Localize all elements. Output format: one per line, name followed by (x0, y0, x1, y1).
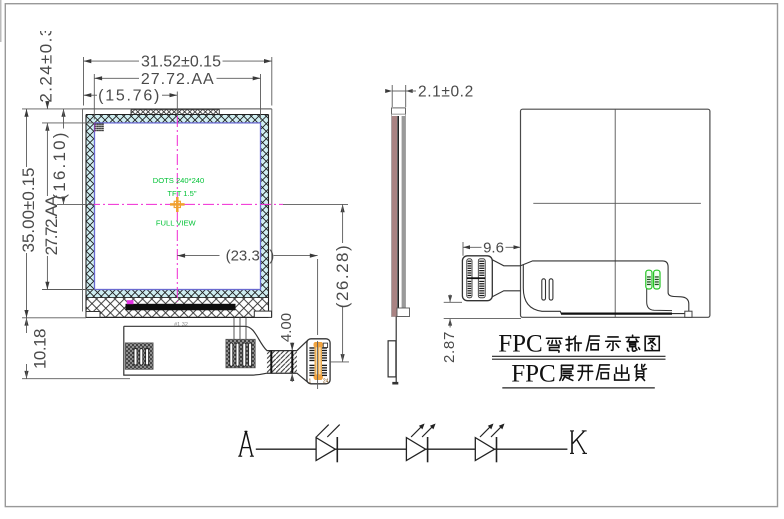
svg-text:2.1±0.2: 2.1±0.2 (418, 84, 474, 101)
svg-text:#1 32: #1 32 (174, 322, 188, 328)
svg-text:24: 24 (323, 378, 329, 384)
svg-text:27.72.AA: 27.72.AA (141, 71, 215, 88)
svg-text:27.72.AA: 27.72.AA (42, 195, 61, 256)
svg-text:2.24±0.3: 2.24±0.3 (37, 25, 56, 102)
svg-text:10.18: 10.18 (31, 329, 50, 369)
svg-text:): ) (269, 248, 274, 265)
svg-text:9.6: 9.6 (483, 240, 504, 257)
svg-text:FPC: FPC (498, 330, 542, 357)
svg-text:1: 1 (309, 378, 312, 384)
svg-text:(15.76): (15.76) (98, 88, 161, 105)
svg-text:(23.3: (23.3 (226, 248, 260, 265)
svg-text:FPC: FPC (511, 360, 555, 387)
svg-text:DOTS 240*240: DOTS 240*240 (153, 176, 205, 185)
svg-text:FULL VIEW: FULL VIEW (156, 219, 197, 228)
svg-text:(16.10): (16.10) (50, 130, 69, 199)
svg-text:31.52±0.15: 31.52±0.15 (141, 54, 221, 71)
svg-text:35.00±0.15: 35.00±0.15 (19, 168, 38, 253)
svg-text:TFT 1.5": TFT 1.5" (167, 189, 196, 198)
svg-text:(26.28): (26.28) (333, 244, 352, 308)
svg-text:4.00: 4.00 (278, 313, 295, 342)
svg-text:2.87: 2.87 (441, 331, 458, 363)
